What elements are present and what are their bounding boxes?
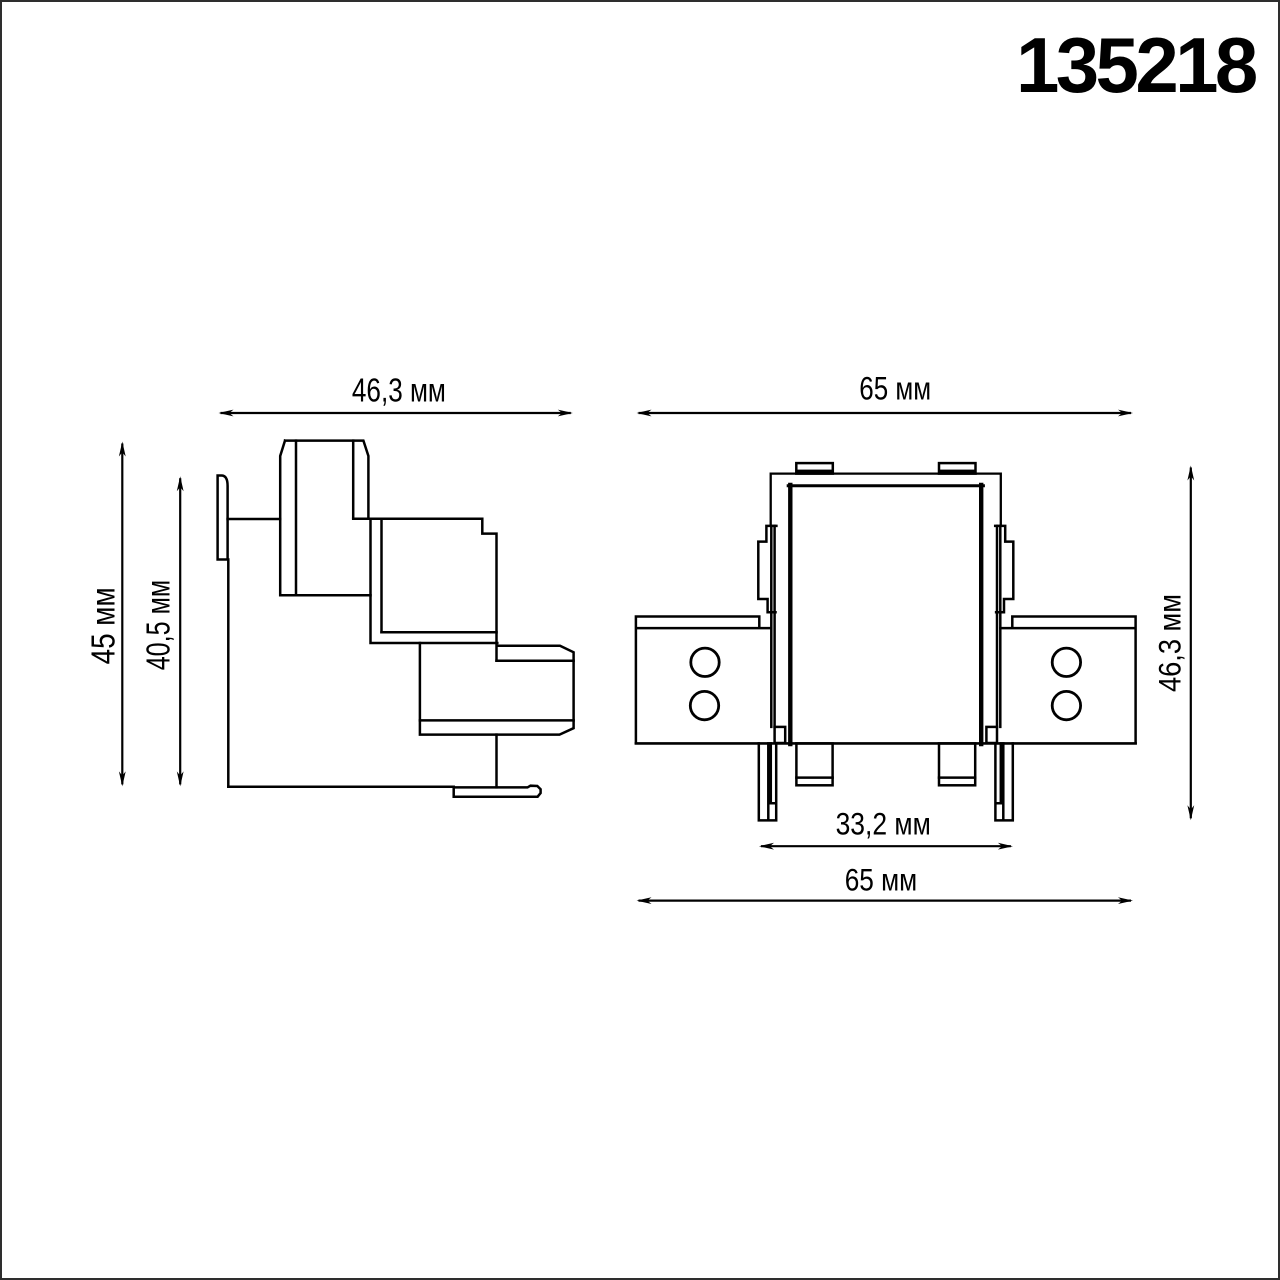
svg-text:45 мм: 45 мм	[85, 587, 122, 664]
svg-text:46,3 мм: 46,3 мм	[352, 372, 446, 409]
svg-text:135218: 135218	[1016, 21, 1256, 109]
svg-text:65 мм: 65 мм	[859, 371, 931, 407]
svg-text:33,2 мм: 33,2 мм	[836, 806, 931, 842]
svg-text:46,3 мм: 46,3 мм	[1152, 594, 1188, 692]
svg-text:65 мм: 65 мм	[845, 862, 918, 898]
svg-text:40,5 мм: 40,5 мм	[140, 580, 177, 671]
